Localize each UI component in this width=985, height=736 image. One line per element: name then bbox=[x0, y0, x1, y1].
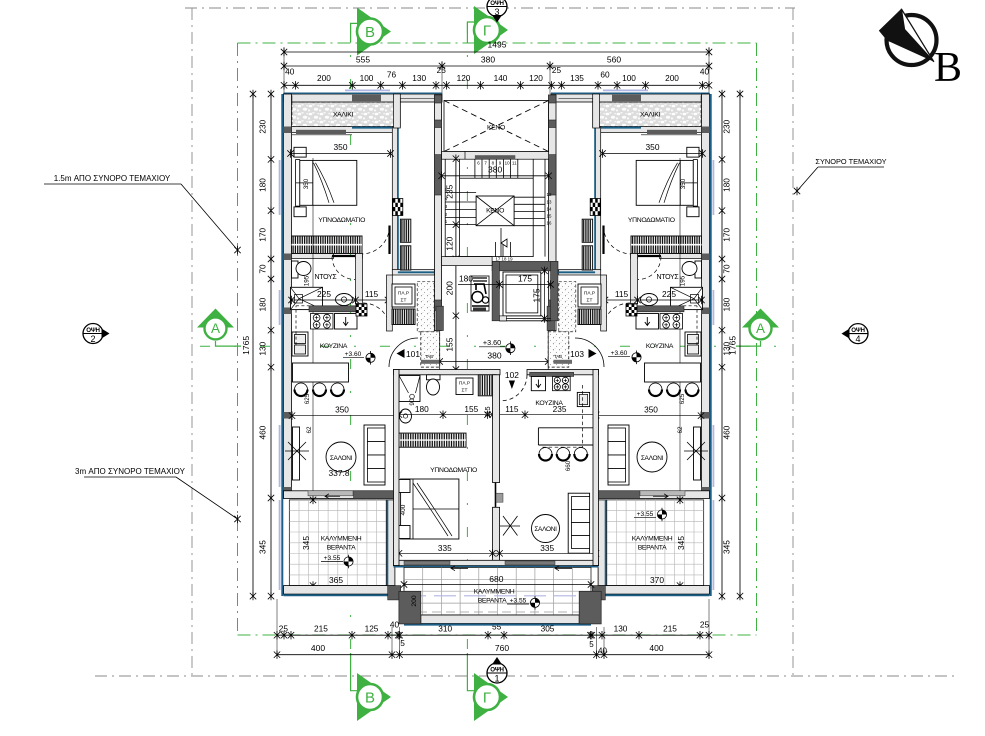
svg-text:230: 230 bbox=[722, 119, 732, 133]
svg-text:40: 40 bbox=[700, 67, 710, 77]
svg-text:130: 130 bbox=[722, 341, 732, 355]
svg-text:76: 76 bbox=[387, 70, 397, 80]
svg-text:102: 102 bbox=[505, 370, 519, 380]
svg-text:+3.60: +3.60 bbox=[345, 351, 362, 358]
svg-text:1495: 1495 bbox=[488, 40, 507, 50]
svg-text:370: 370 bbox=[650, 575, 664, 585]
svg-text:155: 155 bbox=[464, 404, 478, 414]
svg-text:25: 25 bbox=[279, 624, 289, 634]
svg-text:A: A bbox=[211, 321, 220, 336]
svg-text:ΤΑΒ: ΤΑΒ bbox=[425, 354, 433, 359]
svg-text:350: 350 bbox=[335, 405, 349, 415]
svg-text:17 18 19: 17 18 19 bbox=[495, 257, 513, 262]
svg-text:200: 200 bbox=[411, 595, 418, 607]
svg-text:ΚΑΛΥΜΜΕΝΗ: ΚΑΛΥΜΜΕΝΗ bbox=[474, 589, 515, 596]
svg-text:180: 180 bbox=[722, 297, 732, 311]
svg-text:660: 660 bbox=[565, 460, 572, 471]
svg-text:215: 215 bbox=[314, 624, 328, 634]
svg-text:115: 115 bbox=[505, 404, 519, 414]
svg-text:3: 3 bbox=[494, 7, 499, 17]
svg-text:ΣΤ: ΣΤ bbox=[587, 298, 593, 304]
svg-text:25: 25 bbox=[552, 65, 562, 75]
svg-text:130: 130 bbox=[258, 341, 268, 355]
svg-text:60: 60 bbox=[600, 70, 610, 80]
svg-text:200: 200 bbox=[317, 73, 331, 83]
svg-text:ΣΤ: ΣΤ bbox=[401, 298, 407, 304]
svg-text:ΥΠΝΟΔΩΜΑΤΙΟ: ΥΠΝΟΔΩΜΑΤΙΟ bbox=[628, 217, 675, 224]
svg-text:ΣΤ: ΣΤ bbox=[462, 388, 468, 394]
svg-text:400: 400 bbox=[649, 643, 663, 653]
svg-text:Γ: Γ bbox=[483, 23, 491, 40]
svg-text:350: 350 bbox=[680, 178, 687, 189]
svg-text:460: 460 bbox=[722, 425, 732, 439]
svg-text:195: 195 bbox=[304, 275, 311, 286]
svg-text:170: 170 bbox=[258, 227, 268, 241]
svg-text:200: 200 bbox=[665, 73, 679, 83]
svg-text:14: 14 bbox=[547, 207, 552, 212]
svg-text:ΠΛ.Ρ: ΠΛ.Ρ bbox=[398, 291, 409, 297]
svg-text:345: 345 bbox=[301, 536, 311, 550]
svg-text:62: 62 bbox=[306, 426, 313, 434]
svg-text:5: 5 bbox=[589, 640, 594, 649]
svg-text:175: 175 bbox=[518, 274, 532, 284]
svg-text:ΝΤΟΥΣ: ΝΤΟΥΣ bbox=[657, 274, 680, 281]
svg-text:40: 40 bbox=[390, 620, 400, 630]
svg-text:ΠΛ.Ρ: ΠΛ.Ρ bbox=[459, 381, 470, 387]
svg-text:460: 460 bbox=[258, 425, 268, 439]
svg-text:ΠΛ.Ρ: ΠΛ.Ρ bbox=[584, 291, 595, 297]
svg-text:230: 230 bbox=[258, 119, 268, 133]
svg-text:40: 40 bbox=[598, 647, 607, 656]
svg-text:380: 380 bbox=[488, 165, 502, 175]
svg-text:345: 345 bbox=[722, 540, 732, 554]
svg-text:B: B bbox=[365, 690, 375, 707]
svg-text:101: 101 bbox=[406, 349, 420, 359]
svg-text:ΤΑΒ: ΤΑΒ bbox=[554, 354, 562, 359]
svg-text:400: 400 bbox=[400, 504, 407, 515]
svg-text:625: 625 bbox=[304, 393, 311, 404]
svg-text:555: 555 bbox=[356, 55, 370, 65]
svg-text:40: 40 bbox=[285, 67, 295, 77]
svg-text:350: 350 bbox=[334, 142, 348, 152]
svg-text:ΒΕΡΑΝΤΑ: ΒΕΡΑΝΤΑ bbox=[478, 598, 507, 605]
svg-text:100: 100 bbox=[360, 73, 374, 83]
svg-text:ΚΟΥΖΙΝΑ: ΚΟΥΖΙΝΑ bbox=[320, 343, 348, 350]
svg-text:130: 130 bbox=[412, 73, 426, 83]
svg-text:215: 215 bbox=[663, 624, 677, 634]
svg-text:ΧΑΛΙΚΙ: ΧΑΛΙΚΙ bbox=[333, 112, 354, 119]
svg-text:1: 1 bbox=[494, 674, 499, 684]
svg-text:ΚΑΛΥΜΜΕΝΗ: ΚΑΛΥΜΜΕΝΗ bbox=[632, 536, 673, 543]
svg-text:115: 115 bbox=[485, 406, 492, 417]
svg-text:235: 235 bbox=[553, 404, 567, 414]
svg-text:170: 170 bbox=[722, 227, 732, 241]
svg-text:225: 225 bbox=[662, 289, 676, 299]
svg-text:25: 25 bbox=[700, 620, 710, 630]
svg-text:195: 195 bbox=[680, 275, 687, 286]
svg-text:120: 120 bbox=[529, 73, 543, 83]
svg-text:1765: 1765 bbox=[241, 336, 251, 355]
svg-text:70: 70 bbox=[722, 264, 732, 274]
svg-text:680: 680 bbox=[489, 574, 503, 584]
svg-text:140: 140 bbox=[494, 73, 508, 83]
svg-text:335: 335 bbox=[540, 543, 554, 553]
svg-text:115: 115 bbox=[615, 289, 629, 299]
svg-text:ΚΕΝΟ: ΚΕΝΟ bbox=[487, 125, 505, 132]
svg-text:ΟΨΗ: ΟΨΗ bbox=[490, 666, 504, 673]
svg-text:15: 15 bbox=[547, 214, 552, 219]
svg-text:380: 380 bbox=[481, 55, 495, 65]
svg-text:ΣΑΛΟΝΙ: ΣΑΛΟΝΙ bbox=[641, 455, 664, 462]
svg-text:100: 100 bbox=[622, 73, 636, 83]
svg-text:A: A bbox=[756, 321, 765, 336]
svg-text:345: 345 bbox=[676, 536, 686, 550]
svg-text:335: 335 bbox=[438, 543, 452, 553]
svg-text:ΟΨΗ: ΟΨΗ bbox=[851, 327, 865, 334]
svg-text:12: 12 bbox=[547, 192, 552, 197]
svg-text:2: 2 bbox=[90, 334, 95, 344]
svg-text:ΒΕΡΑΝΤΑ: ΒΕΡΑΝΤΑ bbox=[638, 545, 667, 552]
svg-text:200: 200 bbox=[444, 281, 454, 295]
svg-text:120: 120 bbox=[457, 73, 471, 83]
svg-text:ΚΕΝΟ: ΚΕΝΟ bbox=[486, 208, 504, 215]
svg-text:625: 625 bbox=[679, 393, 686, 404]
svg-text:25: 25 bbox=[437, 65, 447, 75]
svg-text:ΧΑΛΙΚΙ: ΧΑΛΙΚΙ bbox=[640, 112, 661, 119]
svg-text:16: 16 bbox=[547, 221, 552, 226]
svg-text:365: 365 bbox=[329, 575, 343, 585]
svg-text:4: 4 bbox=[855, 334, 860, 344]
svg-text:180: 180 bbox=[459, 274, 473, 284]
svg-text:115: 115 bbox=[365, 289, 379, 299]
svg-text:120: 120 bbox=[444, 236, 454, 250]
svg-text:180: 180 bbox=[415, 404, 429, 414]
svg-text:400: 400 bbox=[311, 643, 325, 653]
svg-text:+3.60: +3.60 bbox=[611, 350, 628, 357]
svg-text:B: B bbox=[365, 24, 375, 41]
svg-text:135: 135 bbox=[570, 73, 584, 83]
svg-text:180: 180 bbox=[258, 178, 268, 192]
svg-text:380: 380 bbox=[487, 351, 501, 361]
svg-text:+3.55: +3.55 bbox=[510, 598, 527, 605]
svg-text:1.5m ΑΠΟ ΣΥΝΟΡΟ ΤΕΜΑΧΙΟΥ: 1.5m ΑΠΟ ΣΥΝΟΡΟ ΤΕΜΑΧΙΟΥ bbox=[54, 174, 171, 183]
svg-text:ΚΟΥΖΙΝΑ: ΚΟΥΖΙΝΑ bbox=[646, 343, 674, 350]
svg-text:ΣΑΛΟΝΙ: ΣΑΛΟΝΙ bbox=[534, 526, 557, 533]
svg-text:ΝΤΟΥΣ: ΝΤΟΥΣ bbox=[315, 274, 338, 281]
svg-text:225: 225 bbox=[317, 289, 331, 299]
svg-text:70: 70 bbox=[258, 264, 268, 274]
svg-text:155: 155 bbox=[444, 337, 454, 351]
svg-text:5: 5 bbox=[400, 638, 405, 648]
svg-text:ΟΨΗ: ΟΨΗ bbox=[86, 327, 100, 334]
svg-text:ΥΠΝΟΔΩΜΑΤΙΟ: ΥΠΝΟΔΩΜΑΤΙΟ bbox=[318, 217, 365, 224]
svg-text:350: 350 bbox=[644, 405, 658, 415]
svg-text:337.8: 337.8 bbox=[329, 468, 350, 478]
svg-text:175: 175 bbox=[532, 288, 542, 302]
svg-text:ΣΥΝΟΡΟ ΤΕΜΑΧΙΟΥ: ΣΥΝΟΡΟ ΤΕΜΑΧΙΟΥ bbox=[815, 157, 886, 166]
svg-text:350: 350 bbox=[646, 142, 660, 152]
svg-text:+3.55: +3.55 bbox=[324, 555, 341, 562]
svg-text:Γ: Γ bbox=[483, 690, 491, 707]
svg-text:B: B bbox=[934, 45, 962, 91]
svg-text:10: 10 bbox=[505, 161, 510, 166]
svg-text:+3.60: +3.60 bbox=[483, 338, 501, 347]
svg-text:ΟΨΗ: ΟΨΗ bbox=[490, 0, 504, 7]
svg-text:350: 350 bbox=[303, 178, 310, 189]
svg-text:62: 62 bbox=[677, 426, 684, 434]
svg-text:345: 345 bbox=[258, 540, 268, 554]
svg-text:130: 130 bbox=[614, 624, 628, 634]
svg-text:ΣΑΛΟΝΙ: ΣΑΛΟΝΙ bbox=[330, 455, 353, 462]
svg-text:ΥΠΝΟΔΩΜΑΤΙΟ: ΥΠΝΟΔΩΜΑΤΙΟ bbox=[430, 467, 477, 474]
svg-text:ΚΑΛΥΜΜΕΝΗ: ΚΑΛΥΜΜΕΝΗ bbox=[321, 536, 362, 543]
svg-text:180: 180 bbox=[258, 297, 268, 311]
svg-text:11: 11 bbox=[512, 161, 517, 166]
svg-text:3m ΑΠΟ ΣΥΝΟΡΟ ΤΕΜΑΧΙΟΥ: 3m ΑΠΟ ΣΥΝΟΡΟ ΤΕΜΑΧΙΟΥ bbox=[75, 467, 186, 476]
svg-text:235: 235 bbox=[444, 184, 454, 198]
svg-text:760: 760 bbox=[495, 643, 509, 653]
svg-text:103: 103 bbox=[570, 349, 584, 359]
svg-text:13: 13 bbox=[547, 199, 552, 204]
svg-text:560: 560 bbox=[607, 55, 621, 65]
svg-text:180: 180 bbox=[722, 178, 732, 192]
svg-text:125: 125 bbox=[365, 624, 379, 634]
svg-text:ΒΕΡΑΝΤΑ: ΒΕΡΑΝΤΑ bbox=[327, 545, 356, 552]
